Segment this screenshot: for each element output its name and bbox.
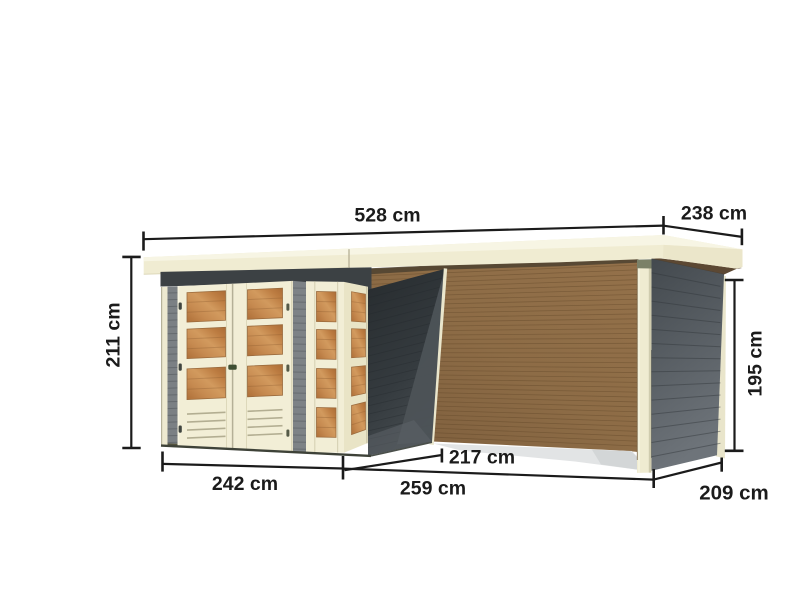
svg-text:242 cm: 242 cm (212, 473, 278, 495)
svg-text:195 cm: 195 cm (745, 330, 767, 396)
svg-text:217 cm: 217 cm (449, 447, 515, 469)
svg-text:259 cm: 259 cm (400, 478, 466, 500)
svg-text:238 cm: 238 cm (681, 203, 747, 225)
svg-text:209 cm: 209 cm (699, 482, 769, 505)
svg-text:528 cm: 528 cm (354, 205, 420, 227)
svg-text:211 cm: 211 cm (103, 302, 125, 367)
